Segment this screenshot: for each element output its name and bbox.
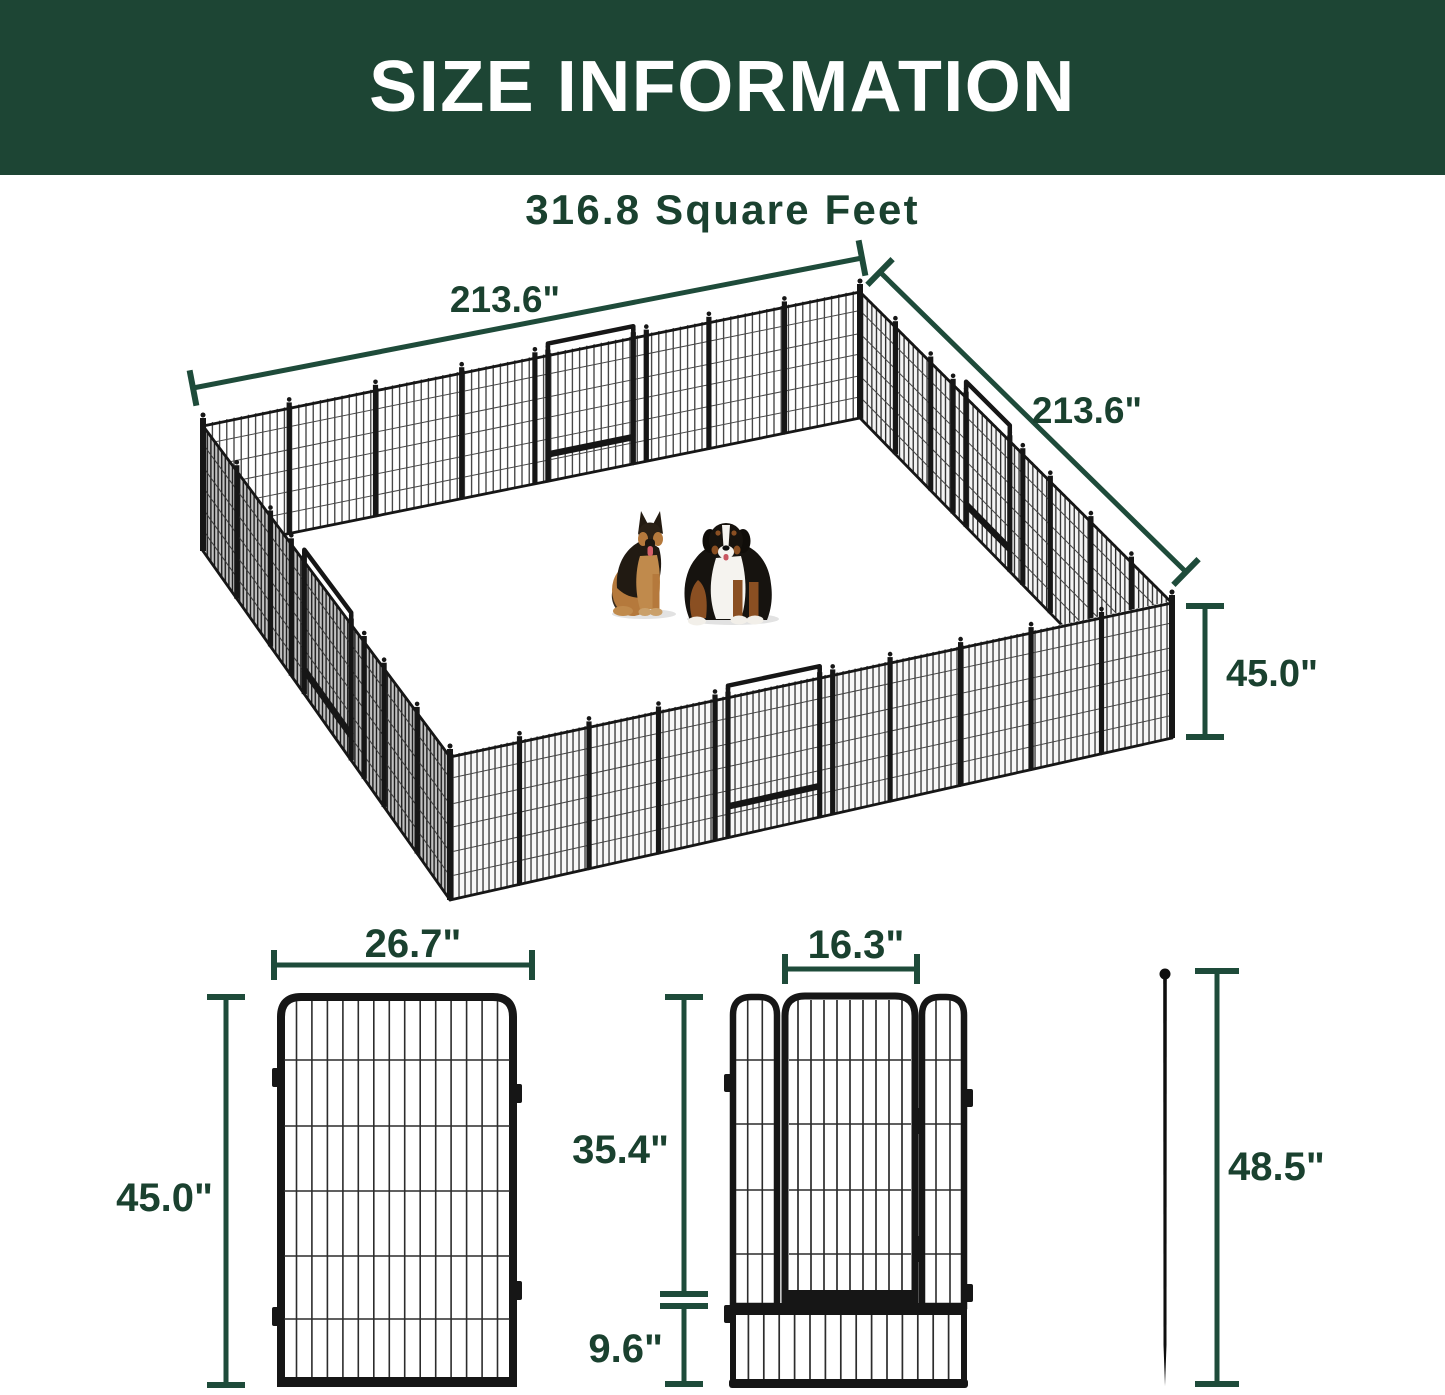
svg-text:213.6": 213.6" [1032, 390, 1142, 431]
svg-text:213.6": 213.6" [450, 279, 560, 320]
svg-text:35.4": 35.4" [572, 1128, 669, 1172]
svg-text:26.7": 26.7" [365, 922, 462, 966]
svg-text:16.3": 16.3" [808, 923, 905, 967]
svg-text:45.0": 45.0" [1226, 653, 1318, 695]
svg-text:45.0": 45.0" [116, 1176, 213, 1220]
svg-text:9.6": 9.6" [588, 1327, 663, 1371]
svg-text:48.5": 48.5" [1228, 1145, 1325, 1189]
